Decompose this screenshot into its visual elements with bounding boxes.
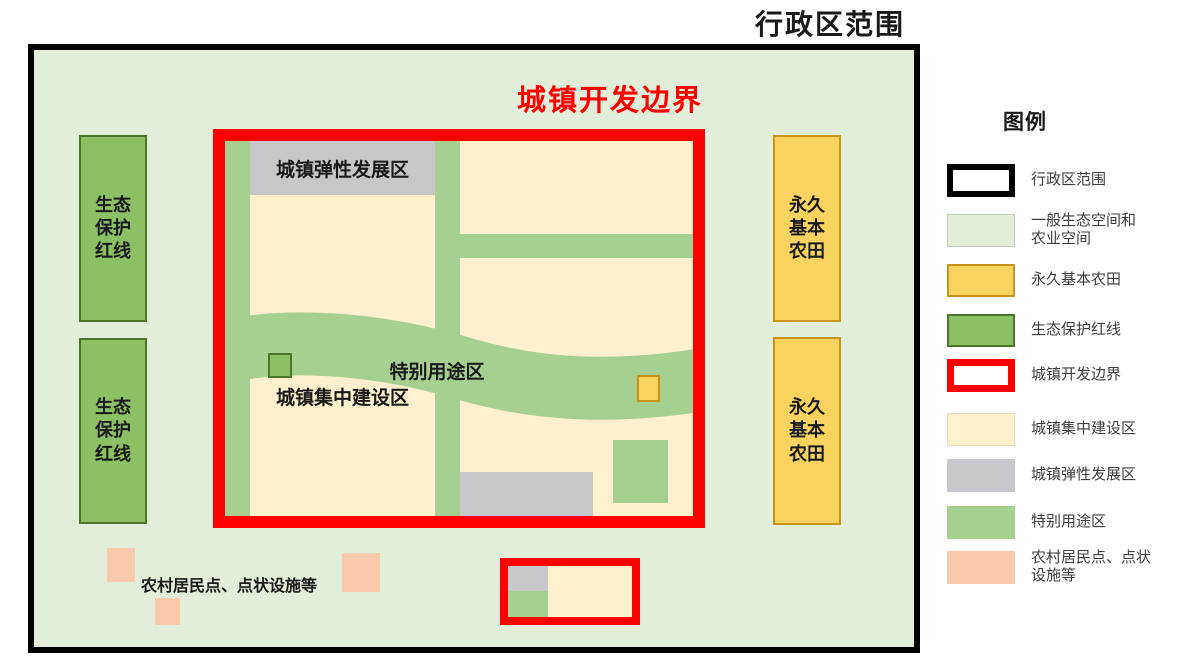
farmland-small-square	[637, 375, 660, 402]
rural-point-square-2	[155, 598, 180, 625]
farmland-rect-2: 永久 基本 农田	[773, 337, 841, 525]
rural-points-label: 农村居民点、点状设施等	[141, 572, 317, 596]
planning-diagram: 行政区范围 生态 保护 红线 生态 保护 红线 永久 基本 农田 永久 基本 农…	[0, 0, 1200, 663]
farmland-rect-1: 永久 基本 农田	[773, 135, 841, 322]
dev-boundary-rect: 城镇弹性发展区 城镇集中建设区 特别用途区	[213, 129, 705, 528]
legend-swatch-dev-boundary	[947, 359, 1015, 392]
flex-development-bottom-block	[460, 472, 593, 516]
legend-label-admin: 行政区范围	[1031, 171, 1106, 189]
legend-item-flex-zone: 城镇弹性发展区	[947, 457, 1197, 493]
legend-item-farmland: 永久基本农田	[947, 262, 1197, 298]
special-zone-label: 特别用途区	[337, 357, 537, 384]
farmland-label-2: 永久 基本 农田	[789, 396, 825, 465]
legend-label-flex-zone: 城镇弹性发展区	[1031, 466, 1136, 484]
legend-swatch-build-zone	[947, 413, 1015, 446]
legend-label-rural-points: 农村居民点、点状 设施等	[1031, 549, 1151, 584]
special-use-square	[613, 440, 668, 503]
build-zone-label: 城镇集中建设区	[250, 383, 435, 410]
legend-item-admin: 行政区范围	[947, 162, 1197, 198]
legend-item-build-zone: 城镇集中建设区	[947, 411, 1197, 447]
legend-swatch-flex-zone	[947, 459, 1015, 492]
admin-region-title: 行政区范围	[738, 3, 922, 43]
legend-item-eco-redline: 生态保护红线	[947, 312, 1197, 348]
farmland-label-1: 永久 基本 农田	[789, 194, 825, 263]
legend-label-farmland: 永久基本农田	[1031, 271, 1121, 289]
legend-label-build-zone: 城镇集中建设区	[1031, 420, 1136, 438]
legend-swatch-admin	[947, 164, 1015, 197]
legend-item-rural-points: 农村居民点、点状 设施等	[947, 549, 1197, 585]
legend-swatch-eco-redline	[947, 314, 1015, 347]
eco-redline-rect-2: 生态 保护 红线	[79, 338, 147, 524]
rural-point-square-3	[342, 553, 380, 592]
legend-label-special-zone: 特别用途区	[1031, 513, 1106, 531]
rural-point-square-1	[107, 548, 135, 582]
dev-boundary-small-rect	[500, 558, 640, 625]
legend-label-eco-redline: 生态保护红线	[1031, 321, 1121, 339]
dev-boundary-title: 城镇开发边界	[500, 77, 720, 119]
legend-swatch-rural-points	[947, 551, 1015, 584]
legend-swatch-farmland	[947, 264, 1015, 297]
legend-label-general-space: 一般生态空间和 农业空间	[1031, 212, 1136, 247]
mini-special-block	[508, 591, 548, 617]
eco-redline-label-2: 生态 保护 红线	[95, 396, 131, 465]
legend-swatch-general-space	[947, 214, 1015, 247]
eco-redline-rect-1: 生态 保护 红线	[79, 135, 147, 322]
legend-item-dev-boundary: 城镇开发边界	[947, 357, 1197, 393]
legend-item-general-space: 一般生态空间和 农业空间	[947, 212, 1197, 248]
legend-title: 图例	[955, 106, 1095, 136]
eco-redline-label-1: 生态 保护 红线	[95, 194, 131, 263]
legend-item-special-zone: 特别用途区	[947, 504, 1197, 540]
mini-flex-block	[508, 566, 548, 591]
legend-label-dev-boundary: 城镇开发边界	[1031, 366, 1121, 384]
eco-redline-small-square	[268, 353, 292, 378]
legend-swatch-special-zone	[947, 506, 1015, 539]
